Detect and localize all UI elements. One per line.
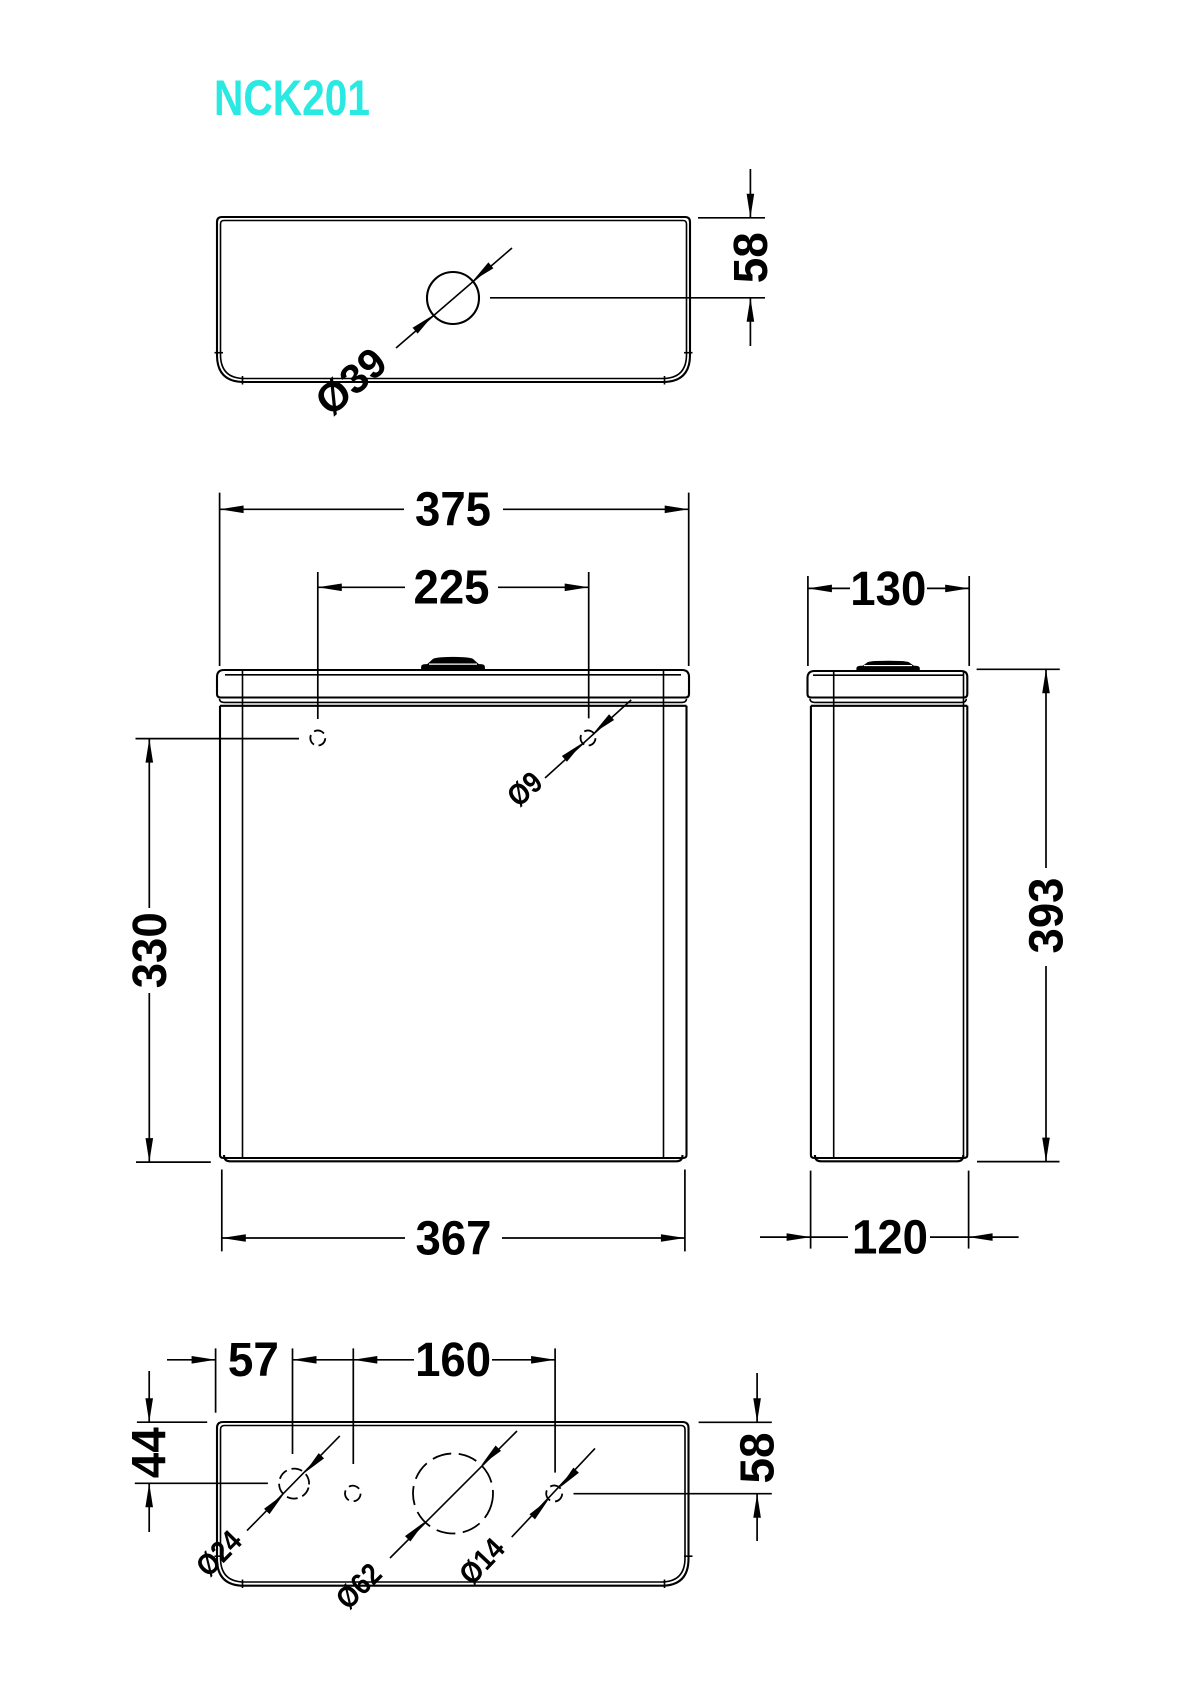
svg-text:367: 367 [416, 1212, 492, 1265]
svg-text:NCK201: NCK201 [214, 70, 370, 126]
svg-text:330: 330 [124, 912, 177, 988]
svg-text:393: 393 [1021, 878, 1074, 954]
svg-text:225: 225 [414, 562, 490, 615]
svg-text:160: 160 [415, 1334, 491, 1387]
svg-text:58: 58 [732, 1433, 785, 1484]
svg-text:44: 44 [124, 1427, 177, 1478]
svg-text:57: 57 [228, 1334, 279, 1387]
svg-text:375: 375 [415, 484, 491, 537]
svg-text:58: 58 [725, 232, 778, 283]
svg-text:130: 130 [850, 563, 926, 616]
svg-text:120: 120 [852, 1212, 928, 1265]
